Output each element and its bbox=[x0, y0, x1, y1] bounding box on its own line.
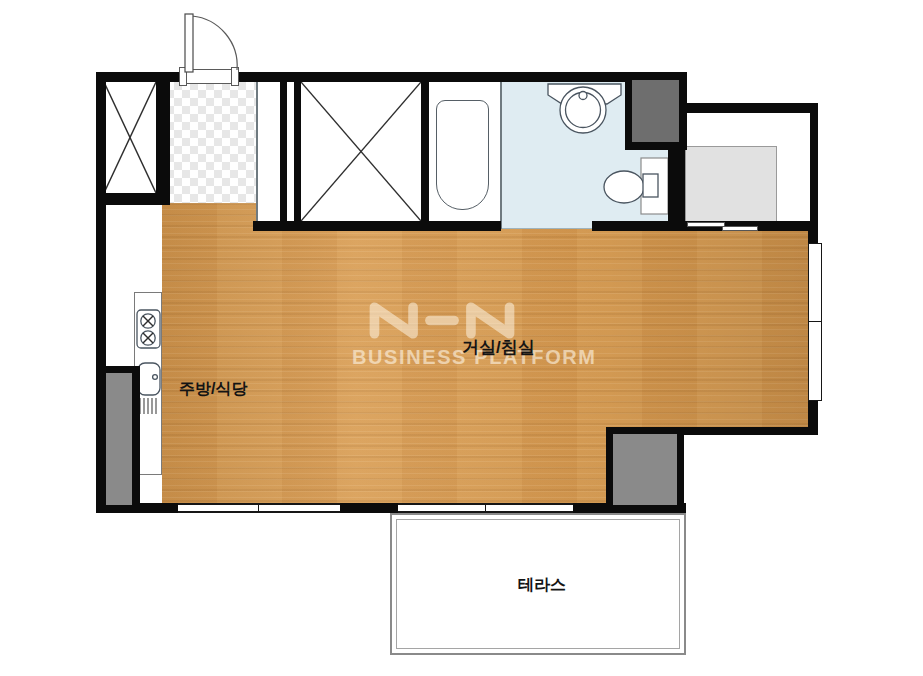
wall-top bbox=[96, 72, 633, 82]
wall-closet-right bbox=[421, 82, 429, 231]
window-bottom-left bbox=[178, 503, 340, 513]
toilet-icon bbox=[600, 155, 675, 220]
entry-edge-line bbox=[256, 82, 258, 221]
column-bottom-right bbox=[606, 427, 684, 513]
entry-foyer-tile-floor bbox=[166, 82, 257, 203]
utility-washer-box bbox=[685, 146, 777, 222]
wall-hall-b bbox=[294, 82, 301, 231]
room-label-terrace: 테라스 bbox=[518, 575, 566, 596]
drainboard-icon bbox=[140, 398, 156, 414]
bathtub-icon bbox=[436, 100, 489, 210]
wall-hall-a bbox=[280, 82, 287, 231]
wall-entry-divider bbox=[156, 82, 170, 205]
nhn-logo-icon bbox=[366, 300, 518, 341]
bathroom-partition-line bbox=[500, 82, 502, 229]
wall-right-upper bbox=[808, 231, 818, 243]
closet-main-x-icon bbox=[301, 82, 421, 221]
closet-left-x-icon bbox=[104, 82, 156, 193]
wall-utility-top bbox=[685, 103, 818, 113]
room-label-living: 거실/침실 bbox=[462, 336, 535, 359]
wall-bottom-mid bbox=[340, 503, 398, 513]
washbasin-icon bbox=[545, 82, 625, 138]
floor-plan: BUSINESS PLATFORM 거실/침실 주방/식당 테라스 bbox=[0, 0, 923, 676]
column-bottom-left bbox=[98, 366, 140, 513]
sliding-door-panel-1 bbox=[687, 222, 725, 227]
entrance-door-icon bbox=[178, 8, 250, 88]
window-bottom-center bbox=[398, 503, 573, 513]
wall-utility-right bbox=[810, 103, 818, 231]
window-right bbox=[808, 243, 822, 401]
sliding-door-panel-2 bbox=[722, 226, 758, 231]
column-bathroom bbox=[625, 72, 687, 150]
wall-strip-bottom bbox=[253, 221, 501, 231]
wall-bathroom-right bbox=[668, 143, 685, 231]
room-label-kitchen: 주방/식당 bbox=[179, 379, 247, 400]
